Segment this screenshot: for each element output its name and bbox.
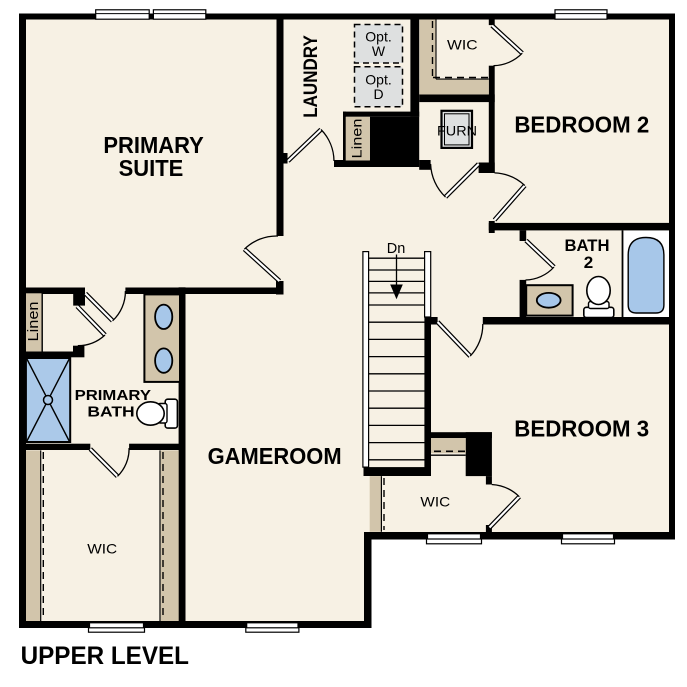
svg-text:D: D [373, 86, 383, 102]
svg-text:W: W [372, 43, 386, 59]
svg-text:UPPER LEVEL: UPPER LEVEL [21, 642, 189, 670]
svg-text:Dn: Dn [387, 241, 406, 257]
svg-text:PRIMARY: PRIMARY [75, 387, 151, 404]
svg-text:WIC: WIC [87, 541, 117, 557]
svg-text:Linen: Linen [349, 119, 365, 159]
svg-text:WIC: WIC [447, 37, 478, 53]
svg-text:LAUNDRY: LAUNDRY [300, 35, 322, 118]
svg-text:BEDROOM 3: BEDROOM 3 [514, 415, 649, 441]
svg-text:SUITE: SUITE [119, 155, 184, 181]
svg-text:GAMEROOM: GAMEROOM [208, 443, 342, 469]
svg-text:Linen: Linen [25, 302, 42, 342]
svg-text:BEDROOM 2: BEDROOM 2 [514, 112, 649, 138]
svg-text:PRIMARY: PRIMARY [103, 132, 203, 158]
svg-text:BATH: BATH [565, 236, 610, 255]
svg-text:FURN: FURN [437, 123, 477, 139]
svg-text:2: 2 [584, 253, 593, 272]
svg-text:WIC: WIC [420, 494, 450, 510]
svg-text:BATH: BATH [87, 403, 134, 420]
